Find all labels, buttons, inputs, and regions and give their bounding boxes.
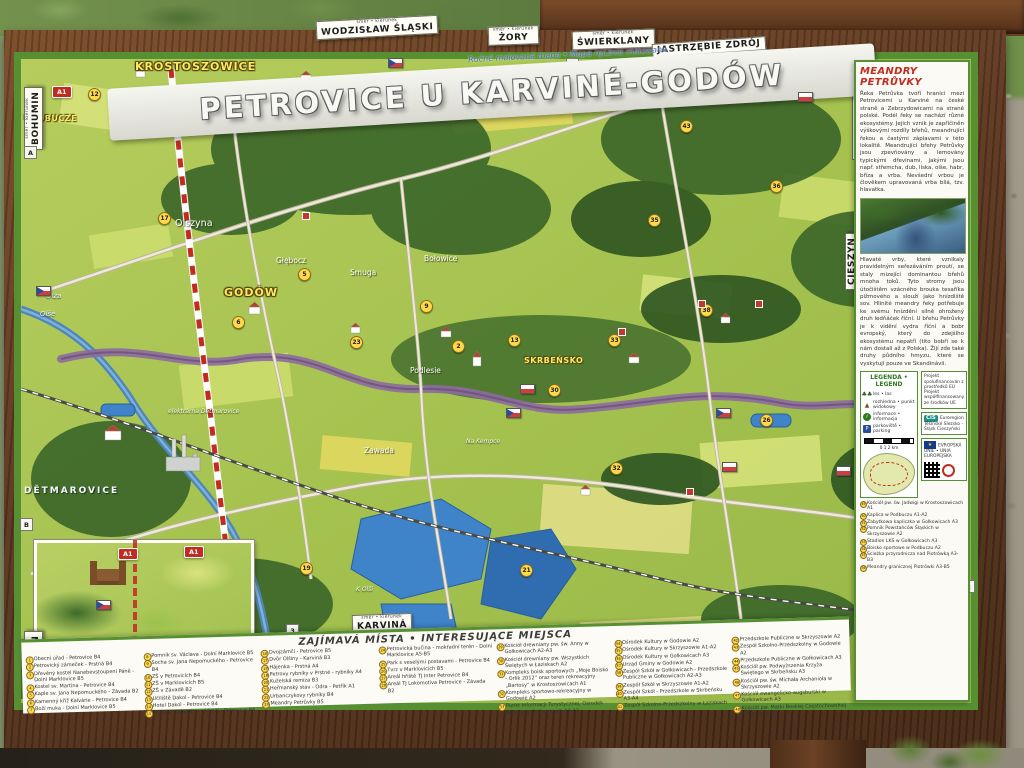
red-circle-logo — [942, 464, 955, 477]
funding-line-pl: Projekt współfinansowany ze środków UE — [924, 390, 964, 406]
panel-paragraph-2: Hlavaté vrby, které vznikaly pravidelným… — [860, 257, 964, 368]
legend-item-label: informace • informacja — [873, 412, 915, 422]
legend-box: LEGENDA • LEGEND ♣♣les • las▲rozhledna •… — [860, 371, 918, 497]
wood-top-rail — [540, 0, 1024, 34]
poi-column: 8Pomník sv. Václava - Dolní Marklovice B… — [143, 650, 259, 735]
scale-label: 0 1 2 km — [863, 445, 915, 450]
poi-number-bullet: 31 — [497, 670, 505, 678]
poi-number-bullet: 43 — [732, 644, 740, 652]
inset-castle-icon — [95, 569, 121, 585]
poi-number-bullet: 48 — [734, 705, 742, 713]
panel-side-boxes: Projekt spolufinancován z prostředků EU … — [921, 371, 967, 497]
legend-item-label: les • las — [873, 392, 892, 397]
poi-number-bullet: 15 — [145, 710, 153, 718]
poi-number-bullet: 52 — [860, 526, 867, 533]
wood-post-leg — [770, 740, 866, 768]
legend-row: iinformace • informacja — [863, 412, 915, 422]
poi-number-bullet: 45 — [732, 665, 740, 673]
poi-number-bullet: 33 — [498, 703, 506, 711]
scale-bar — [864, 438, 914, 444]
poi-legend-item: 28Areál TJ Lokomotiva Petrovice - Závada… — [380, 679, 494, 695]
poi-number-bullet: 49 — [860, 501, 867, 508]
poi-column: 16Dvojzámčí - Petrovice B517Dvůr Olšiny … — [261, 647, 377, 732]
poi-list-item: 52Pomnik Powstańców Śląskich w Skrzyszow… — [860, 526, 964, 537]
poi-number-bullet: 32 — [498, 690, 506, 698]
poi-legend-item: 41Zespół Szkolno-Przedszkolny w Łaziskac… — [616, 700, 730, 716]
right-info-panel: MEANDRY PETRŮVKY Řeka Petrůvka tvoří hra… — [854, 60, 970, 702]
panel-title: MEANDRY PETRŮVKY — [860, 66, 964, 88]
poi-number-bullet: 9 — [143, 660, 151, 668]
poi-list-item: 51Zabytkowa kapliczka w Gołkowicach A3 — [860, 520, 964, 526]
eu-qr-box: ★EVROPSKÁ UNIE • UNIA EUROPEJSKA — [921, 438, 967, 481]
poi-number-bullet: 47 — [733, 691, 741, 699]
panel-bottom-row: LEGENDA • LEGEND ♣♣les • las▲rozhledna •… — [860, 371, 964, 497]
poi-number-bullet: 55 — [860, 552, 867, 559]
poi-number-bullet: 30 — [497, 657, 505, 665]
legend-row: ▲rozhledna • punkt widokowy — [863, 400, 915, 410]
legend-row: ♣♣les • las — [863, 390, 915, 398]
poi-number-bullet: 56 — [860, 565, 867, 572]
poi-list-item: 55Ścieżka przyrodnicza nad Piotrówką A3-… — [860, 552, 964, 563]
trees-icon: ♣♣ — [863, 390, 871, 398]
poi-list-item: 54Boisko sportowe w Podbuczu A2 — [860, 546, 964, 552]
poi-legend-item: 48Kościół pw. Matki Boskiej Częstochowsk… — [734, 702, 848, 718]
poi-legend-item: 33Punkt Informacji Turystycznej, Ośrodek… — [498, 700, 612, 716]
poi-column: 1Obecní úřad - Petrovice B42Petrovický z… — [26, 653, 142, 738]
poi-number-bullet: 28 — [380, 682, 388, 690]
euroregion-logo-box: CiSEuroregion Těšínské Slezsko - Śląsk C… — [921, 412, 967, 435]
poi-number-bullet: 7 — [27, 706, 35, 714]
poi-number-bullet: 40 — [615, 690, 623, 698]
poi-list-item: 53Stadion LKS w Gołkowicach A3 — [860, 539, 964, 545]
poi-number-bullet: 41 — [616, 703, 624, 711]
funding-line-cz: Projekt spolufinancován z prostředků EU — [924, 374, 964, 390]
poi-column: 24Petrovická bučina - mokřadní terén - D… — [379, 643, 495, 728]
poi-list-item: 50Kaplica w Podbuczu A1-A2 — [860, 513, 964, 519]
minimap-border-line — [870, 462, 908, 486]
poi-list-continuation: 49Kościół pw. św. Jadwigi w Krostoszowic… — [860, 501, 964, 571]
legend-title: LEGENDA • LEGEND — [863, 374, 915, 388]
poi-number-bullet: 24 — [379, 646, 387, 654]
poi-column: 29Kościół drewniany pw. św. Anny w Gołko… — [496, 640, 612, 725]
river-meander-photo — [860, 198, 966, 254]
poi-column: 42Przedszkole Publiczne w Skrzyszowie A2… — [732, 634, 848, 719]
background-grass — [880, 700, 1024, 768]
info-icon: i — [863, 413, 871, 421]
polish-flag-icon — [798, 92, 813, 102]
legend-item-label: parkoviště • parking — [873, 424, 915, 434]
poi-list-item: 49Kościół pw. św. Jadwigi w Krostoszowic… — [860, 501, 964, 512]
poi-number-bullet: 29 — [496, 643, 504, 651]
viewpoint-icon: ▲ — [863, 401, 871, 409]
inset-a1-road — [133, 540, 137, 644]
czech-flag-icon — [388, 58, 403, 68]
poi-number-bullet: 46 — [733, 678, 741, 686]
poi-number-bullet: 38 — [615, 669, 623, 677]
poi-legend-item: 31Kompleks boisk sportowych „Moje Boisko… — [497, 667, 611, 689]
poi-list-item: 56Meandry granicznej Piotrówki A3-B5 — [860, 565, 964, 571]
euroregion-logo: CiS — [924, 415, 938, 422]
funding-note-box: Projekt spolufinancován z prostředků EU … — [921, 371, 967, 409]
ground-shadow — [0, 748, 1024, 768]
legend-item-label: rozhledna • punkt widokowy — [873, 400, 915, 410]
commune-outline-minimap — [863, 453, 915, 495]
poi-column: 34Ośrodek Kultury w Godowie A235Ośrodek … — [614, 637, 730, 722]
poi-number-bullet: 3 — [26, 671, 34, 679]
qr-code — [924, 462, 940, 478]
poi-number-bullet: 23 — [262, 700, 270, 708]
eu-flag-icon: ★ — [924, 441, 936, 449]
panel-paragraph-1: Řeka Petrůvka tvoří hranici mezi Petrovi… — [860, 91, 964, 195]
legend-row: Pparkoviště • parking — [863, 424, 915, 434]
parking-icon: P — [863, 425, 871, 433]
